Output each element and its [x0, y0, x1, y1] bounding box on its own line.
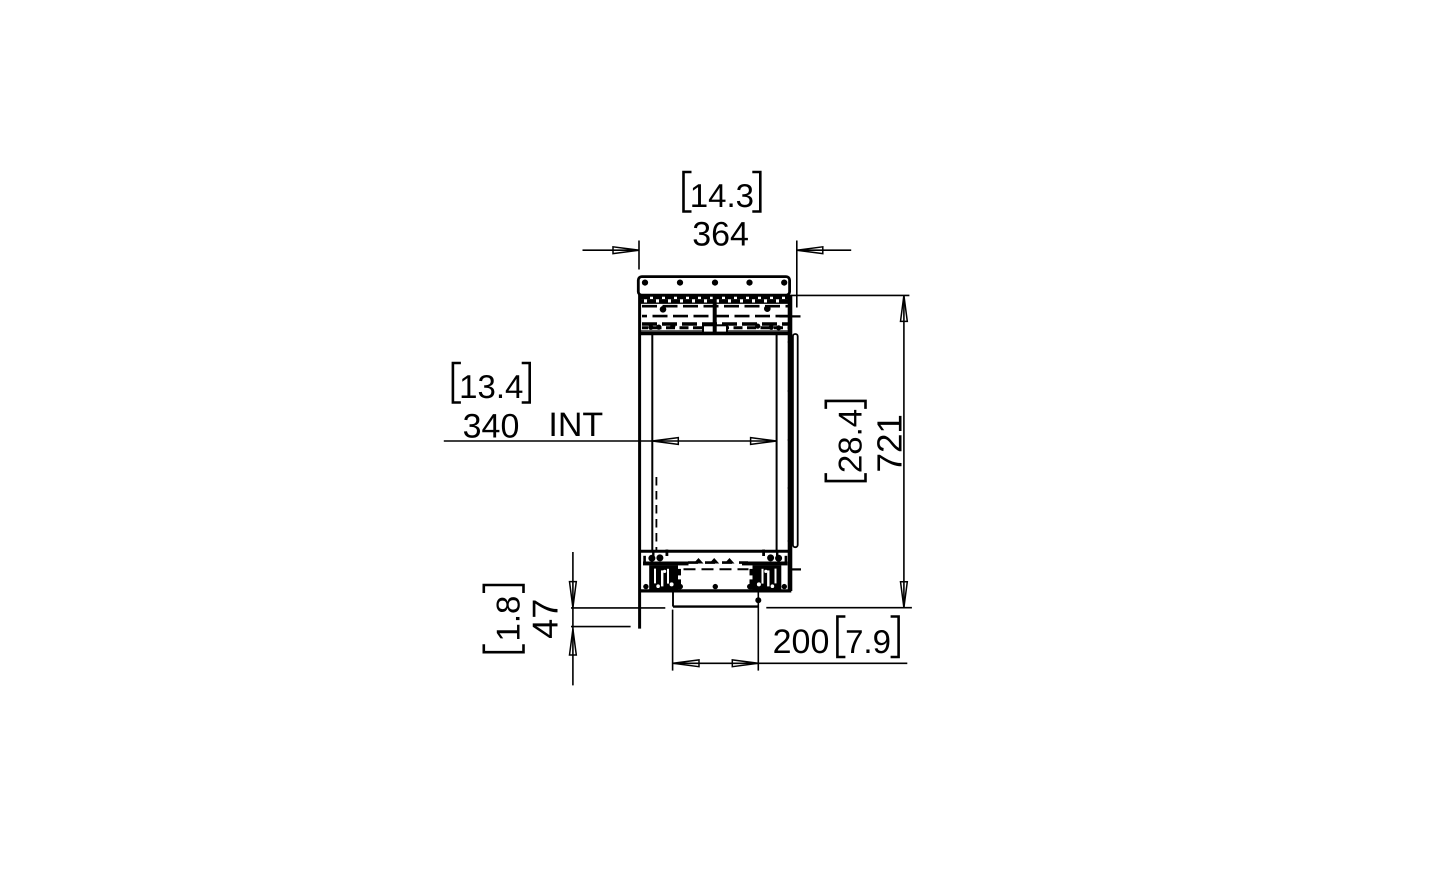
- svg-text:364: 364: [692, 216, 749, 254]
- svg-text:47: 47: [525, 599, 566, 639]
- svg-text:INT: INT: [548, 406, 603, 444]
- svg-text:200: 200: [773, 623, 830, 661]
- svg-text:721: 721: [871, 414, 910, 472]
- svg-text:13.4: 13.4: [459, 368, 523, 405]
- svg-text:7.9: 7.9: [845, 623, 891, 660]
- svg-text:340: 340: [463, 407, 520, 445]
- svg-text:1.8: 1.8: [490, 596, 527, 642]
- svg-text:14.3: 14.3: [690, 177, 754, 214]
- svg-text:28.4: 28.4: [832, 409, 869, 473]
